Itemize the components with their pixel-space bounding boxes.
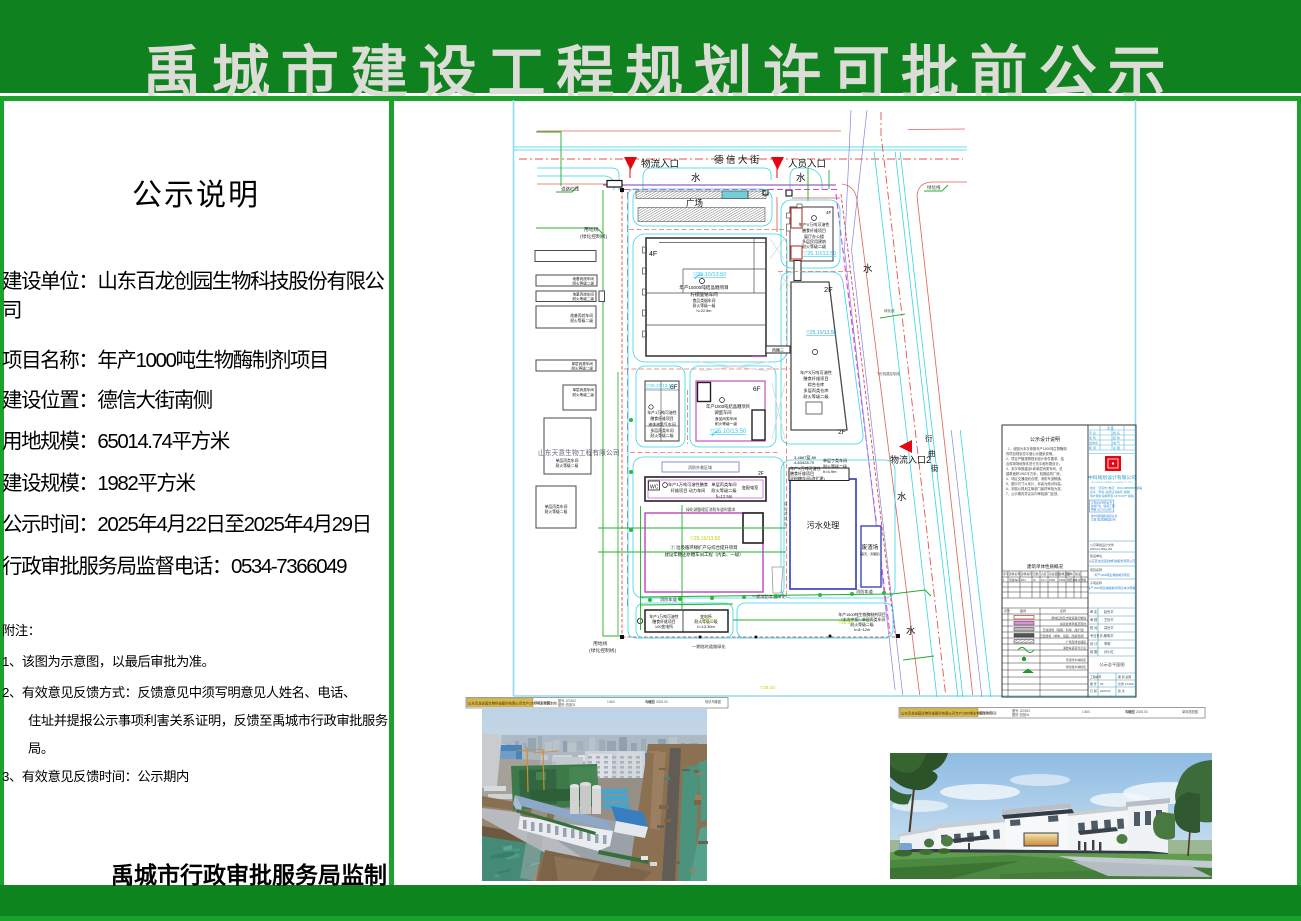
svg-text:中科规划设计有限公司: 中科规划设计有限公司 <box>1088 474 1136 481</box>
svg-text:图别 总图04: 图别 总图04 <box>1012 712 1029 717</box>
svg-text:▽25.10: ▽25.10 <box>838 620 853 625</box>
svg-text:12m: 12m <box>1041 578 1047 582</box>
svg-text:1982: 1982 <box>1059 578 1066 582</box>
svg-text:鸟瞰图: 鸟瞰图 <box>645 699 655 704</box>
svg-text:2025.03: 2025.03 <box>1136 710 1148 714</box>
svg-text:已建建筑（单体、加固、改造利用）: 已建建筑（单体、加固、改造利用） <box>1040 633 1086 638</box>
svg-text:(绿化控制线): (绿化控制线) <box>580 233 608 240</box>
svg-text:▽25.10/13.50: ▽25.10/13.50 <box>690 536 720 542</box>
svg-text:王世平: 王世平 <box>1104 617 1114 622</box>
svg-text:4-63428.70: 4-63428.70 <box>794 460 815 465</box>
svg-text:地基丙烷车间: 地基丙烷车间 <box>572 276 594 281</box>
svg-text:结 构: 结 构 <box>1113 435 1120 440</box>
svg-text:4F: 4F <box>826 210 832 215</box>
svg-text:▽25.10/13.50: ▽25.10/13.50 <box>646 383 674 388</box>
svg-text:食品丙类车间: 食品丙类车间 <box>715 416 737 421</box>
svg-text:绿化线: 绿化线 <box>884 308 895 313</box>
svg-text:ZHONGKE PLANNING DESIGN CO.,LT: ZHONGKE PLANNING DESIGN CO.,LTD. <box>1091 481 1133 484</box>
svg-text:① 垃圾循环梯扩产与综合提升项目: ① 垃圾循环梯扩产与综合提升项目 <box>670 544 737 551</box>
svg-text:公示设计说明: 公示设计说明 <box>1030 436 1060 443</box>
svg-text:本次申报: 本次申报 <box>1075 578 1086 582</box>
svg-text:工程编号: 工程编号 <box>1090 674 1102 679</box>
svg-text:淀粉糖车间(改扩建): 淀粉糖车间(改扩建) <box>790 475 825 481</box>
svg-text:1:600: 1:600 <box>1082 710 1090 714</box>
svg-text:h=13.30m: h=13.30m <box>697 624 714 629</box>
svg-text:膳食纤维项目: 膳食纤维项目 <box>650 416 673 421</box>
svg-text:版 次: 版 次 <box>1118 688 1125 693</box>
svg-text:2F: 2F <box>758 471 764 477</box>
svg-text:h=22.5m: h=22.5m <box>697 309 712 313</box>
svg-text:名称: 名称 <box>1060 608 1066 613</box>
svg-text:h=4.9m: h=4.9m <box>823 469 837 474</box>
svg-text:电 气: 电 气 <box>1113 440 1120 445</box>
svg-text:6、本图以规划主管部门最终审批为准。: 6、本图以规划主管部门最终审批为准。 <box>1006 486 1064 491</box>
svg-text:建筑面积1982平方米，轻钢结构厂房。: 建筑面积1982平方米，轻钢结构厂房。 <box>1006 471 1063 476</box>
svg-text:耐火等级二级: 耐火等级二级 <box>570 318 593 323</box>
svg-text:审 核: 审 核 <box>1090 617 1098 622</box>
svg-text:水: 水 <box>796 172 806 184</box>
svg-text:耐火等级二级: 耐火等级二级 <box>572 392 594 397</box>
svg-text:子项名称: 子项名称 <box>1090 580 1102 585</box>
svg-text:剂项目规划总平面公示图纸说明。: 剂项目规划总平面公示图纸说明。 <box>1006 451 1055 456</box>
svg-text:耐火等级二级: 耐火等级二级 <box>572 281 594 286</box>
svg-text:一期临时道路绿化: 一期临时道路绿化 <box>692 643 726 650</box>
svg-text:城乡规划 编制甲级 A371039** 邮编: 城乡规划 编制甲级 A371039** 邮编 <box>1090 494 1134 498</box>
svg-text:年产1500吨生物酶制剂项目(本次申报): 年产1500吨生物酶制剂项目(本次申报) <box>1088 585 1137 590</box>
svg-text:水: 水 <box>897 491 907 503</box>
svg-text:制剂车间: 制剂车间 <box>979 710 992 715</box>
svg-text:结构: 结构 <box>1067 572 1073 576</box>
svg-text:德信大街: 德信大街 <box>714 154 762 166</box>
svg-text:水: 水 <box>863 263 873 275</box>
svg-text:拟建建筑申报范围线: 拟建建筑申报范围线 <box>1060 621 1086 626</box>
svg-text:用地线: 用地线 <box>584 226 599 233</box>
svg-text:膳食纤维项目: 膳食纤维项目 <box>803 375 828 382</box>
svg-text:给排水: 给排水 <box>1089 440 1098 445</box>
svg-text:消防扑救区域: 消防扑救区域 <box>688 464 712 470</box>
svg-text:飞行线路控制线: 飞行线路控制线 <box>876 371 900 376</box>
svg-text:序号: 序号 <box>1003 572 1009 576</box>
svg-text:5、图中尺寸以米计，标高为绝对标高。: 5、图中尺寸以米计，标高为绝对标高。 <box>1006 481 1064 486</box>
svg-text:2、项目严格按照规划设计条件要求，结: 2、项目严格按照规划设计条件要求，结 <box>1006 456 1065 461</box>
svg-text:备注: 备注 <box>1075 572 1081 576</box>
svg-text:绿化线: 绿化线 <box>927 184 941 191</box>
svg-text:年产1000吨结晶糖项目: 年产1000吨结晶糖项目 <box>706 403 750 410</box>
svg-text:丙类车间: 丙类车间 <box>1009 578 1020 582</box>
svg-text:区: 区 <box>784 522 788 526</box>
svg-text:图别 总图03: 图别 总图03 <box>558 702 575 707</box>
svg-text:1:600: 1:600 <box>607 700 615 704</box>
svg-text:液体液氮气车间: 液体液氮气车间 <box>648 422 675 427</box>
svg-text:年产15000吨结晶糖项目: 年产15000吨结晶糖项目 <box>679 284 729 291</box>
svg-text:▽25.10: ▽25.10 <box>700 618 715 623</box>
svg-text:1982: 1982 <box>1049 578 1056 582</box>
svg-text:7、公示期内异议请向审批部门反馈。: 7、公示期内异议请向审批部门反馈。 <box>1006 491 1061 496</box>
svg-text:单层丙类车间: 单层丙类车间 <box>711 481 736 488</box>
svg-text:6F: 6F <box>753 386 761 393</box>
svg-text:城乡规划编制资质证书: 城乡规划编制资质证书 <box>1091 514 1117 518</box>
svg-text:年产1万吨可溶性膳食: 年产1万吨可溶性膳食 <box>668 481 709 488</box>
svg-text:2025-04-JZGH-001: 2025-04-JZGH-001 <box>1090 547 1113 551</box>
svg-text:校 对: 校 对 <box>1090 625 1098 630</box>
svg-text:耐火等级二级: 耐火等级二级 <box>711 487 737 494</box>
svg-text:建: 建 <box>784 501 788 506</box>
svg-text:现状鸟瞰图: 现状鸟瞰图 <box>705 699 721 704</box>
svg-text:03: 03 <box>1100 682 1104 686</box>
svg-text:鸟瞰图: 鸟瞰图 <box>1125 709 1135 714</box>
svg-text:制 图: 制 图 <box>1090 649 1097 654</box>
svg-text:物流入口2: 物流入口2 <box>890 454 931 465</box>
svg-text:设 计: 设 计 <box>1090 641 1098 646</box>
svg-text:消防车道: 消防车道 <box>660 596 678 603</box>
svg-text:2025.03: 2025.03 <box>656 700 668 704</box>
svg-text:WC: WC <box>650 485 659 491</box>
svg-text:建设单位: 建设单位 <box>1090 553 1102 558</box>
svg-text:暖 通: 暖 通 <box>1089 445 1096 450</box>
svg-text:h=8~12m: h=8~12m <box>854 627 870 632</box>
svg-text:图例: 图例 <box>1020 608 1026 613</box>
svg-text:合现场场地条件进行总平面布置设计。: 合现场场地条件进行总平面布置设计。 <box>1006 461 1062 466</box>
svg-text:消防车道: 消防车道 <box>856 588 874 595</box>
svg-text:膳食纤维项目: 膳食纤维项目 <box>802 227 826 233</box>
svg-text:柠檬酸钠车间: 柠檬酸钠车间 <box>690 291 718 298</box>
svg-text:单层丙类车间: 单层丙类车间 <box>571 361 593 366</box>
svg-text:总 图: 总 图 <box>1113 445 1120 450</box>
svg-text:图 别 总图: 图 别 总图 <box>1118 674 1131 679</box>
svg-text:清: 清 <box>784 511 788 516</box>
svg-text:甲级 A137011389: 甲级 A137011389 <box>1091 508 1112 512</box>
svg-text:张明平: 张明平 <box>1104 633 1114 638</box>
svg-text:1、该图为本次申报年产1500吨生物酶制: 1、该图为本次申报年产1500吨生物酶制 <box>1008 446 1067 451</box>
svg-text:2F: 2F <box>824 285 833 294</box>
svg-text:赵世平: 赵世平 <box>1104 609 1114 614</box>
svg-text:调蛋车间: 调蛋车间 <box>714 409 731 416</box>
svg-text:高世平: 高世平 <box>1104 625 1114 630</box>
svg-text:李明: 李明 <box>1104 641 1110 646</box>
svg-text:耐火等级一级: 耐火等级一级 <box>693 303 716 308</box>
svg-text:耐火等级二级: 耐火等级二级 <box>802 243 826 249</box>
svg-text:建筑编号: 建筑编号 <box>1021 572 1032 576</box>
svg-text:年产X万吨可溶性: 年产X万吨可溶性 <box>800 369 832 376</box>
svg-text:单层丙类车间: 单层丙类车间 <box>556 458 579 463</box>
svg-text:100变电所: 100变电所 <box>655 624 673 629</box>
svg-text:耐火等级二级: 耐火等级二级 <box>650 433 673 438</box>
svg-text:B11: B11 <box>1021 578 1026 582</box>
svg-text:▽25.10/13.50: ▽25.10/13.50 <box>803 251 836 257</box>
svg-text:山东天意生物工程有限公司: 山东天意生物工程有限公司 <box>538 448 620 457</box>
svg-text:建筑行业（建筑工程）: 建筑行业（建筑工程） <box>1091 504 1117 508</box>
svg-text:变配电室: 变配电室 <box>742 484 759 491</box>
svg-text:年产1万吨可溶性: 年产1万吨可溶性 <box>647 410 677 415</box>
svg-text:工程设计资质证书: 工程设计资质证书 <box>1091 501 1112 505</box>
svg-text:建筑名称: 建筑名称 <box>1009 572 1020 576</box>
svg-text:1F: 1F <box>1033 578 1037 582</box>
svg-text:风: 风 <box>784 517 788 521</box>
svg-text:日 期: 日 期 <box>1090 688 1097 693</box>
svg-text:西酶三: 西酶三 <box>772 347 784 353</box>
svg-text:耐火等级二级: 耐火等级二级 <box>545 509 568 514</box>
svg-text:单层丙类车间: 单层丙类车间 <box>572 387 594 392</box>
svg-text:乙级 [鲁]城规编第(08): 乙级 [鲁]城规编第(08) <box>1091 518 1116 522</box>
svg-text:年产1000吨生物酶制剂项目: 年产1000吨生物酶制剂项目 <box>1094 572 1129 577</box>
svg-text:▽25.10/13.50: ▽25.10/13.50 <box>806 330 836 336</box>
svg-text:耐火等级二级: 耐火等级二级 <box>556 463 579 468</box>
svg-text:山东百龙创园生物科技股份有限公司: 山东百龙创园生物科技股份有限公司 <box>1089 558 1135 563</box>
svg-text:耐火等级二级: 耐火等级二级 <box>571 366 593 371</box>
svg-text:(露天、清理区): (露天、清理区) <box>860 551 880 556</box>
svg-text:街: 街 <box>931 463 939 473</box>
svg-text:层数: 层数 <box>1033 572 1039 576</box>
svg-text:景观乔木种植区: 景观乔木种植区 <box>1066 657 1086 662</box>
svg-text:地基丙烷车间: 地基丙烷车间 <box>570 313 593 318</box>
svg-text:纤维项目 动力车间: 纤维项目 动力车间 <box>671 487 706 494</box>
svg-text:年产X万吨可溶性: 年产X万吨可溶性 <box>799 221 830 227</box>
svg-text:设: 设 <box>784 506 788 511</box>
svg-text:广场: 广场 <box>686 198 703 208</box>
svg-text:单层丙类车间: 单层丙类车间 <box>545 504 568 509</box>
svg-text:道路红线: 道路红线 <box>561 186 579 193</box>
svg-text:1: 1 <box>1003 578 1005 582</box>
svg-text:3、本次申报建设1栋单层丙类车间，总: 3、本次申报建设1栋单层丙类车间，总 <box>1006 466 1063 471</box>
svg-text:曲: 曲 <box>928 448 936 458</box>
svg-text:绿化湖整理区消防车道时要求: 绿化湖整理区消防车道时要求 <box>686 507 736 512</box>
svg-text:4F: 4F <box>649 251 657 258</box>
svg-text:水: 水 <box>691 172 701 184</box>
svg-text:h=12.5m: h=12.5m <box>716 494 733 499</box>
svg-text:水: 水 <box>906 625 916 637</box>
svg-text:废渣场: 废渣场 <box>862 543 879 551</box>
svg-text:(绿化控制线): (绿化控制线) <box>589 647 617 654</box>
svg-text:消防车道转弯示意: 消防车道转弯示意 <box>1063 645 1086 650</box>
svg-text:广场及绿化铺装: 广场及绿化铺装 <box>1066 639 1086 644</box>
svg-text:单层丁类车间: 单层丁类车间 <box>823 457 847 463</box>
svg-text:公示总平面图: 公示总平面图 <box>1099 661 1124 668</box>
svg-text:已建建筑（保留、利用、改扩建）: 已建建筑（保留、利用、改扩建） <box>1043 627 1086 632</box>
svg-text:食品类烟车间: 食品类烟车间 <box>693 298 716 303</box>
svg-text:审 定: 审 定 <box>1090 609 1098 614</box>
svg-text:绿化灌木种植区: 绿化灌木种植区 <box>1066 664 1086 669</box>
svg-text:用地线: 用地线 <box>593 640 608 647</box>
svg-text:耐火等级一级: 耐火等级一级 <box>715 421 737 426</box>
svg-text:衍: 衍 <box>925 433 933 443</box>
svg-text:单体透视图: 单体透视图 <box>1182 709 1198 714</box>
svg-text:耐火等级二级: 耐火等级二级 <box>572 296 594 301</box>
svg-text:▽25.10: ▽25.10 <box>760 685 775 690</box>
svg-text:孙小红: 孙小红 <box>1104 649 1114 654</box>
svg-text:多层丙类仓库: 多层丙类仓库 <box>803 387 828 394</box>
svg-text:综合仓库: 综合仓库 <box>808 381 825 388</box>
svg-text:2F: 2F <box>838 429 846 436</box>
svg-text:会 签: 会 签 <box>1107 425 1114 430</box>
svg-text:比例 1:1000: 比例 1:1000 <box>1118 681 1134 686</box>
svg-text:4、场区交通组织合理，消防车道畅通。: 4、场区交通组织合理，消防车道畅通。 <box>1006 476 1064 481</box>
svg-text:项目名称: 项目名称 <box>1090 567 1102 572</box>
svg-text:耐火等级二级: 耐火等级二级 <box>803 393 829 400</box>
svg-text:用地红线及市政道路控制线: 用地红线及市政道路控制线 <box>1051 615 1086 620</box>
svg-text:建 筑: 建 筑 <box>1089 435 1096 440</box>
svg-text:公示审批设计文件: 公示审批设计文件 <box>1090 542 1114 547</box>
svg-text:图 号: 图 号 <box>1090 681 1097 686</box>
svg-text:姓 名: 姓 名 <box>1113 430 1120 435</box>
svg-text:地基丙烷车间: 地基丙烷车间 <box>572 292 594 297</box>
svg-text:现状实景图: 现状实景图 <box>534 700 550 705</box>
svg-text:2025.04: 2025.04 <box>1100 689 1111 693</box>
svg-text:一期消防车道绿化: 一期消防车道绿化 <box>752 593 786 600</box>
svg-text:专 业: 专 业 <box>1089 430 1096 435</box>
svg-text:序号: 序号 <box>1004 608 1010 613</box>
svg-text:污水处理: 污水处理 <box>807 520 840 530</box>
svg-text:建筑单体性质概况: 建筑单体性质概况 <box>1027 563 1063 570</box>
svg-text:高度: 高度 <box>1041 572 1047 576</box>
